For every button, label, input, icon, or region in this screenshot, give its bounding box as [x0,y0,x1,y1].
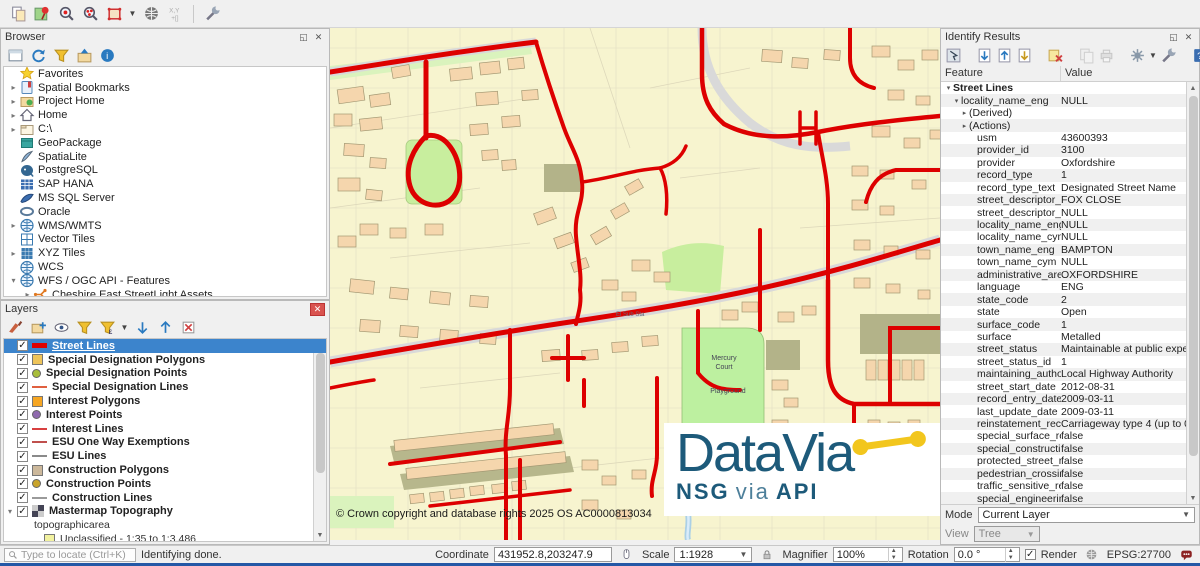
expand-tree-icon[interactable] [132,318,152,338]
identify-row[interactable]: state_code2 [941,293,1199,305]
expander-icon[interactable]: ▾ [4,507,16,516]
expander-icon[interactable]: ▸ [8,97,19,106]
browser-item-label: Project Home [38,95,105,107]
browser-item-label: Oracle [38,206,70,218]
identify-row[interactable]: ▾Street Lines [941,82,1199,94]
feature-cell: town_name_eng [941,244,1061,256]
layer-label: Street Lines [52,340,115,352]
feature-cell: surface [941,331,1061,343]
feature-cell: provider_id [941,144,1061,156]
identify-row[interactable]: street_descriptor_e...FOX CLOSE [941,194,1199,206]
legend-label: topographicarea [34,519,110,531]
collapse-form-icon[interactable] [996,46,1013,66]
remove-layer-icon[interactable] [178,318,198,338]
crs-globe-icon [1082,545,1102,565]
browser-item-label: GeoPackage [38,137,102,149]
layer-symbol [32,410,41,419]
view-select[interactable]: Tree▼ [974,526,1040,542]
expander-icon[interactable]: ▾ [8,276,19,285]
value-cell: OXFORDSHIRE [1061,269,1199,281]
identify-row[interactable]: town_name_cymNULL [941,256,1199,268]
browser-item-label: SAP HANA [38,178,93,190]
lock-icon[interactable] [757,545,777,565]
value-cell: 1 [1061,356,1199,368]
identify-panel-title: Identify Results [945,31,1020,43]
close-icon[interactable]: ✕ [312,31,325,43]
copy-features-icon[interactable] [8,4,28,24]
value-cell: ENG [1061,281,1199,293]
qgis-window: ▼X,Y+[] Browser ◱ ✕ i Favorites▸Spatial … [0,0,1200,566]
logo-sub-via: via [736,479,770,504]
layer-label: Mastermap Topography [49,505,173,517]
layer-symbol [32,497,47,499]
layers-panel-title: Layers [5,303,38,315]
browser-item-label: Favorites [38,68,83,80]
layer-symbol [32,343,47,348]
select-region-icon[interactable] [104,4,124,24]
feature-cell: ▸(Derived) [941,107,1061,119]
browser-item[interactable]: WCS [4,260,326,274]
browser-item-label: SpatiaLite [38,151,87,163]
feature-cell: maintaining_autho... [941,368,1061,380]
layer-item[interactable]: ✓Interest Lines [4,422,326,436]
feature-cell: ▸(Actions) [941,120,1061,132]
identify-row[interactable]: street_status_id1 [941,356,1199,368]
layer-item[interactable]: ▾✓Mastermap Topography [4,505,326,519]
layer-checkbox[interactable]: ✓ [17,492,28,503]
browser-item[interactable]: Favorites [4,67,326,81]
feature-cell: special_engineerin... [941,493,1061,504]
wrench-icon[interactable] [1160,46,1177,66]
identify-row[interactable]: surface_code1 [941,318,1199,330]
feature-cell: special_surface_re... [941,430,1061,442]
search-icon [8,550,18,560]
browser-item-label: WFS / OGC API - Features [38,275,170,287]
value-cell: false [1061,430,1199,442]
layer-label: Interest Lines [52,423,124,435]
expander-icon[interactable]: ▸ [8,83,19,92]
value-cell: 2009-03-11 [1061,393,1199,405]
layer-checkbox[interactable]: ✓ [17,409,28,420]
folder-up-icon[interactable] [74,46,94,66]
layer-item[interactable]: ✓Construction Polygons [4,463,326,477]
identify-row[interactable]: special_constructi...false [941,443,1199,455]
layer-item[interactable]: ✓Construction Points [4,477,326,491]
browser-item-label: Cheshire East StreetLight Assets [52,289,213,297]
brush-icon[interactable] [5,318,25,338]
layer-label: Special Designation Lines [52,381,188,393]
copy-dis-icon[interactable] [1078,46,1095,66]
layer-symbol [32,465,43,476]
expand-new-icon[interactable] [1016,46,1033,66]
expander-icon[interactable]: ▸ [8,125,19,134]
feature-cell: locality_name_eng [941,219,1061,231]
layer-label: Interest Points [46,409,122,421]
feature-cell: usm [941,132,1061,144]
value-cell: 2012-08-31 [1061,381,1199,393]
browser-item[interactable]: MS SQL Server [4,191,326,205]
scale-select[interactable]: 1:1928▼ [674,547,752,562]
identify-row[interactable]: locality_name_engNULL [941,219,1199,231]
svg-text:i: i [106,51,108,62]
browser-item-label: PostgreSQL [38,164,98,176]
status-bar: Type to locate (Ctrl+K) Identifying done… [0,545,1200,563]
identify-row[interactable]: street_start_date2012-08-31 [941,381,1199,393]
identify-toolbar: ▼? [941,45,1199,66]
map-label-playground: Playground [710,388,746,395]
value-cell: 1 [1061,169,1199,181]
identify-row[interactable]: street_statusMaintainable at public expe… [941,343,1199,355]
feature-cell: record_type [941,169,1061,181]
info-icon[interactable]: i [97,46,117,66]
layers-toolbar: ε▼ [1,317,329,338]
feature-cell: street_start_date [941,381,1061,393]
layer-checkbox[interactable]: ✓ [17,368,28,379]
close-icon[interactable]: ✕ [1182,31,1195,43]
clear-results-icon[interactable] [1047,46,1064,66]
identify-row[interactable]: record_type_textDesignated Street Name [941,182,1199,194]
browser-item-label: WCS [38,261,64,273]
browser-item[interactable]: SAP HANA [4,177,326,191]
feature-cell: reinstatement_rec... [941,418,1061,430]
value-cell: Local Highway Authority [1061,368,1199,380]
xy-capture-icon[interactable]: X,Y+[] [165,4,185,24]
layer-symbol [32,354,43,365]
magnifier-label: Magnifier [782,549,827,561]
float-panel-icon[interactable]: ◱ [297,31,310,43]
browser-item-label: Home [38,109,67,121]
feature-cell: pedestrian_crossin... [941,468,1061,480]
layer-checkbox[interactable]: ✓ [17,451,28,462]
logo-dumbbell-icon [850,429,928,455]
browser-panel-title: Browser [5,31,45,43]
streetlight-icon [33,288,49,297]
main-toolbar: ▼X,Y+[] [0,0,1200,28]
value-cell: false [1061,443,1199,455]
identify-row[interactable]: administrative_areaOXFORDSHIRE [941,269,1199,281]
dropdown-arrow-icon[interactable]: ▼ [128,4,137,24]
value-cell: NULL [1061,256,1199,268]
value-cell: 2009-03-11 [1061,406,1199,418]
layer-label: Special Designation Polygons [48,354,205,366]
identify-cursor-icon[interactable] [945,46,962,66]
browser-item[interactable]: ▾WFS / OGC API - Features [4,274,326,288]
identify-row[interactable]: languageENG [941,281,1199,293]
identify-row[interactable]: ▸(Derived) [941,107,1199,119]
expand-form-icon[interactable] [976,46,993,66]
browser-item-label: Spatial Bookmarks [38,82,130,94]
layer-checkbox[interactable]: ✓ [17,423,28,434]
print-dis-icon[interactable] [1098,46,1115,66]
feature-cell: protected_street_r... [941,455,1061,467]
browser-item[interactable]: SpatiaLite [4,150,326,164]
feature-cell: special_constructi... [941,443,1061,455]
status-message: Identifying done. [141,549,222,561]
globe-icon[interactable] [141,4,161,24]
mouse-position-icon[interactable] [617,545,637,565]
funnel-icon[interactable] [74,318,94,338]
value-cell: 43600393 [1061,132,1199,144]
identify-row[interactable]: ▾locality_name_engNULL [941,94,1199,106]
layer-label: Construction Points [46,478,151,490]
layer-checkbox[interactable]: ✓ [17,382,28,393]
browser-item[interactable]: PostgreSQL [4,164,326,178]
feature-cell: town_name_cym [941,256,1061,268]
value-cell: BAMPTON [1061,244,1199,256]
identify-row[interactable]: provider_id3100 [941,144,1199,156]
value-cell: false [1061,468,1199,480]
feature-cell: traffic_sensitive_re... [941,480,1061,492]
identify-scrollbar[interactable]: ▲ ▼ [1186,82,1199,504]
mode-label: Mode [945,509,973,521]
layer-label: Special Designation Points [46,367,187,379]
value-cell: Carriageway type 4 (up to 0... [1061,418,1199,430]
value-cell: false [1061,455,1199,467]
layer-label: Construction Polygons [48,464,169,476]
coordinate-input[interactable]: 431952.8,203247.9 [494,547,612,562]
browser-item-label: C:\ [38,123,52,135]
svg-text:+[]: +[] [171,15,178,22]
value-cell: 1 [1061,319,1199,331]
float-panel-icon[interactable]: ◱ [1167,31,1180,43]
feature-cell: record_type_text [941,182,1061,194]
browser-item[interactable]: ▸Cheshire East StreetLight Assets [4,288,326,297]
dropdown-arrow-icon[interactable]: ▼ [1149,46,1157,66]
value-cell: NULL [1061,95,1199,107]
magnifier-spinner[interactable]: 100%▲▼ [833,547,903,562]
layer-legend-item[interactable]: topographicarea [4,518,326,532]
browser-item[interactable]: ▸WMS/WMTS [4,219,326,233]
layer-item[interactable]: ✓Construction Lines [4,491,326,505]
funnel-icon[interactable] [51,46,71,66]
layer-checkbox[interactable]: ✓ [17,506,28,517]
browser-tree: Favorites▸Spatial Bookmarks▸Project Home… [3,66,327,297]
feature-cell: provider [941,157,1061,169]
identify-panel: Identify Results ◱ ✕ ▼? Feature Value ▾S… [940,28,1200,545]
svg-text:X,Y: X,Y [169,7,180,14]
expression-icon[interactable]: ε [97,318,117,338]
value-cell: Maintainable at public expen... [1061,343,1199,355]
value-cell: NULL [1061,207,1199,219]
map-label-mercury: Mercury [711,355,737,362]
rotation-label: Rotation [908,549,949,561]
view-label: View [945,528,969,540]
feature-cell: ▾Street Lines [941,82,1061,94]
value-cell: NULL [1061,219,1199,231]
column-value: Value [1061,66,1199,81]
value-cell: false [1061,493,1199,504]
refresh-icon[interactable] [28,46,48,66]
zoom-red-icon[interactable] [56,4,76,24]
themes-icon[interactable] [51,318,71,338]
logo-sub-api: API [776,479,819,504]
map-canvas[interactable]: Mercury Court Playground El Sub Sta © Cr… [330,28,940,540]
feature-cell: state_code [941,294,1061,306]
value-cell: false [1061,480,1199,492]
identify-row[interactable]: town_name_engBAMPTON [941,244,1199,256]
layer-symbol [32,396,43,407]
rotation-spinner[interactable]: 0.0 °▲▼ [954,547,1020,562]
identify-row[interactable]: ▸(Actions) [941,119,1199,131]
layer-checkbox[interactable]: ✓ [17,354,28,365]
identify-row[interactable]: record_entry_date2009-03-11 [941,393,1199,405]
feature-cell: record_entry_date [941,393,1061,405]
layer-item[interactable]: ✓ESU One Way Exemptions [4,436,326,450]
expander-icon[interactable]: ▸ [8,221,19,230]
value-cell: 3100 [1061,144,1199,156]
identify-row[interactable]: usm43600393 [941,132,1199,144]
group-icon [32,505,44,517]
identify-table-header: Feature Value [941,66,1199,82]
expander-icon[interactable]: ▸ [22,290,33,297]
layer-item[interactable]: ✓Special Designation Lines [4,380,326,394]
map-label-court: Court [715,364,732,371]
layer-symbol [32,386,47,388]
browser-item[interactable]: ▸Spatial Bookmarks [4,81,326,95]
datavia-logo: DataVia NSGviaAPI [664,423,940,516]
close-icon[interactable]: ✕ [310,303,325,316]
add-panel-icon[interactable] [5,46,25,66]
layer-legend-item[interactable]: Unclassified - 1:35 to 1:3,486 [4,532,326,542]
layer-symbol [32,455,47,457]
layer-label: Construction Lines [52,492,152,504]
browser-item-label: MS SQL Server [38,192,115,204]
feature-cell: street_descriptor_c... [941,207,1061,219]
identify-row[interactable]: reinstatement_rec...Carriageway type 4 (… [941,418,1199,430]
feature-cell: last_update_date [941,406,1061,418]
expander-icon[interactable]: ▸ [8,111,19,120]
value-cell: NULL [1061,231,1199,243]
add-group-icon[interactable] [28,318,48,338]
layer-item[interactable]: ✓Special Designation Polygons [4,353,326,367]
render-label: Render [1041,549,1077,561]
layer-symbol [32,441,47,443]
map-copyright: © Crown copyright and database rights 20… [336,508,652,520]
render-checkbox[interactable]: ✓ [1025,549,1036,560]
value-cell: Metalled [1061,331,1199,343]
identify-row[interactable]: surfaceMetalled [941,331,1199,343]
expander-icon[interactable]: ▸ [8,249,19,258]
layers-list: ▲ ▼ ✓Street Lines✓Special Designation Po… [3,338,327,542]
messages-icon[interactable] [1176,545,1196,565]
wrench-icon[interactable] [202,4,222,24]
value-cell: Designated Street Name [1061,182,1199,194]
identify-row[interactable]: special_engineerin...false [941,492,1199,504]
feature-cell: surface_code [941,319,1061,331]
layer-label: ESU One Way Exemptions [52,436,190,448]
feature-cell: state [941,306,1061,318]
mode-select[interactable]: Current Layer▼ [978,507,1195,523]
layers-panel: Layers ✕ ε▼ ▲ ▼ ✓Street Lines✓Special De… [0,300,330,545]
identify-row[interactable]: last_update_date2009-03-11 [941,405,1199,417]
feature-cell: ▾locality_name_eng [941,95,1061,107]
crs-value[interactable]: EPSG:27700 [1107,549,1171,561]
identify-row[interactable]: record_type1 [941,169,1199,181]
layer-checkbox[interactable]: ✓ [17,478,28,489]
browser-item-label: WMS/WMTS [38,220,102,232]
browser-item[interactable]: Vector Tiles [4,233,326,247]
identify-row[interactable]: maintaining_autho...Local Highway Author… [941,368,1199,380]
layer-item[interactable]: ✓ESU Lines [4,449,326,463]
dropdown-arrow-icon[interactable]: ▼ [120,318,129,338]
browser-item-label: Vector Tiles [38,233,95,245]
identify-row[interactable]: protected_street_r...false [941,455,1199,467]
settings-icon[interactable] [1129,46,1146,66]
logo-sub-nsg: NSG [676,479,730,504]
layer-symbol [32,479,41,488]
layer-checkbox[interactable]: ✓ [17,437,28,448]
identify-row[interactable]: special_surface_re...false [941,430,1199,442]
layer-checkbox[interactable]: ✓ [17,465,28,476]
layer-item[interactable]: ✓Street Lines [4,339,326,353]
identify-table: ▾Street Lines▾locality_name_engNULL▸(Der… [941,82,1199,504]
feature-cell: street_descriptor_e... [941,194,1061,206]
browser-item[interactable]: ▸Home [4,108,326,122]
feature-cell: administrative_area [941,269,1061,281]
help-icon[interactable]: ? [1191,46,1200,66]
value-cell: Oxfordshire [1061,157,1199,169]
map-label-substation: El Sub Sta [616,312,645,318]
browser-panel: Browser ◱ ✕ i Favorites▸Spatial Bookmark… [0,28,330,300]
collapse-tree-icon[interactable] [155,318,175,338]
legend-label: Unclassified - 1:35 to 1:3,486 [60,533,196,542]
layer-checkbox[interactable]: ✓ [17,340,28,351]
browser-item[interactable]: ▸XYZ Tiles [4,246,326,260]
layer-item[interactable]: ✓Interest Polygons [4,394,326,408]
layer-symbol [44,534,55,542]
identify-row[interactable]: pedestrian_crossin...false [941,468,1199,480]
value-cell: Open [1061,306,1199,318]
layer-item[interactable]: ✓Special Designation Points [4,367,326,381]
feature-cell: locality_name_cym [941,231,1061,243]
toolbar-separator [193,5,194,23]
coordinate-label: Coordinate [435,549,489,561]
layer-label: Interest Polygons [48,395,140,407]
feature-cell: street_status_id [941,356,1061,368]
browser-item[interactable]: ▸Project Home [4,95,326,109]
layer-symbol [32,428,47,430]
identify-row[interactable]: traffic_sensitive_re...false [941,480,1199,492]
browser-toolbar: i [1,45,329,66]
browser-item-label: XYZ Tiles [38,247,85,259]
feature-cell: language [941,281,1061,293]
identify-row[interactable]: street_descriptor_c...NULL [941,206,1199,218]
value-cell: FOX CLOSE [1061,194,1199,206]
layer-label: ESU Lines [52,450,106,462]
identify-row[interactable]: providerOxfordshire [941,157,1199,169]
browser-item[interactable]: GeoPackage [4,136,326,150]
pin-icon[interactable] [32,4,52,24]
identify-red-icon[interactable] [80,4,100,24]
identify-row[interactable]: stateOpen [941,306,1199,318]
browser-item[interactable]: Oracle [4,205,326,219]
layer-item[interactable]: ✓Interest Points [4,408,326,422]
scale-label: Scale [642,549,670,561]
value-cell: 2 [1061,294,1199,306]
feature-cell: street_status [941,343,1061,355]
identify-row[interactable]: locality_name_cymNULL [941,231,1199,243]
locate-input[interactable]: Type to locate (Ctrl+K) [4,548,136,562]
layer-checkbox[interactable]: ✓ [17,396,28,407]
layer-symbol [32,369,41,378]
svg-text:ε: ε [108,326,112,336]
browser-item[interactable]: ▸C:\ [4,122,326,136]
column-feature: Feature [941,66,1061,81]
